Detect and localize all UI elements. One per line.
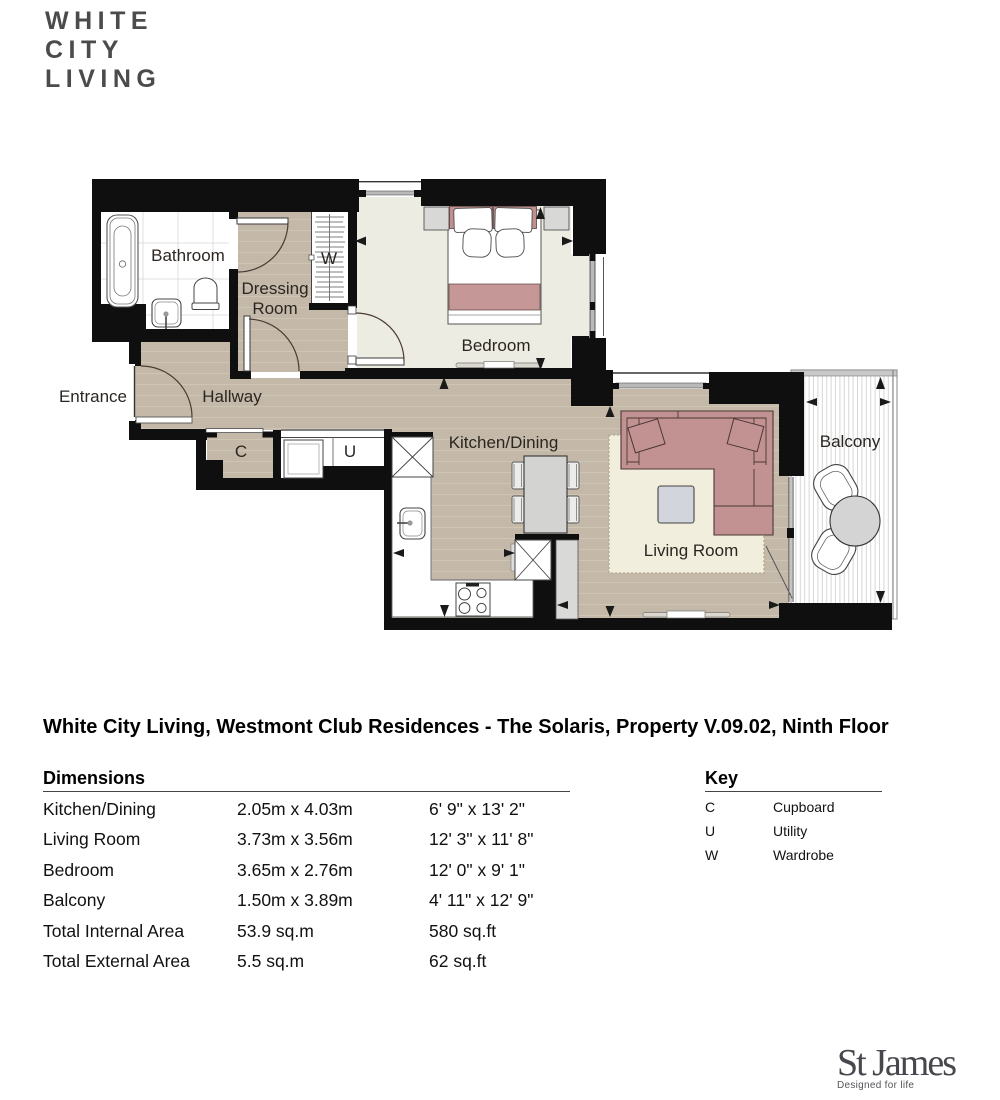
svg-text:Bedroom: Bedroom xyxy=(462,336,531,355)
svg-text:C: C xyxy=(235,442,247,461)
svg-text:Room: Room xyxy=(252,299,297,318)
svg-text:Entrance: Entrance xyxy=(59,387,127,406)
svg-text:Hallway: Hallway xyxy=(202,387,262,406)
svg-text:W: W xyxy=(321,249,337,268)
svg-text:Living Room: Living Room xyxy=(644,541,739,560)
svg-text:Dressing: Dressing xyxy=(241,279,308,298)
svg-text:Bathroom: Bathroom xyxy=(151,246,225,265)
svg-text:Kitchen/Dining: Kitchen/Dining xyxy=(449,433,559,452)
svg-text:U: U xyxy=(344,442,356,461)
svg-text:Balcony: Balcony xyxy=(820,432,881,451)
